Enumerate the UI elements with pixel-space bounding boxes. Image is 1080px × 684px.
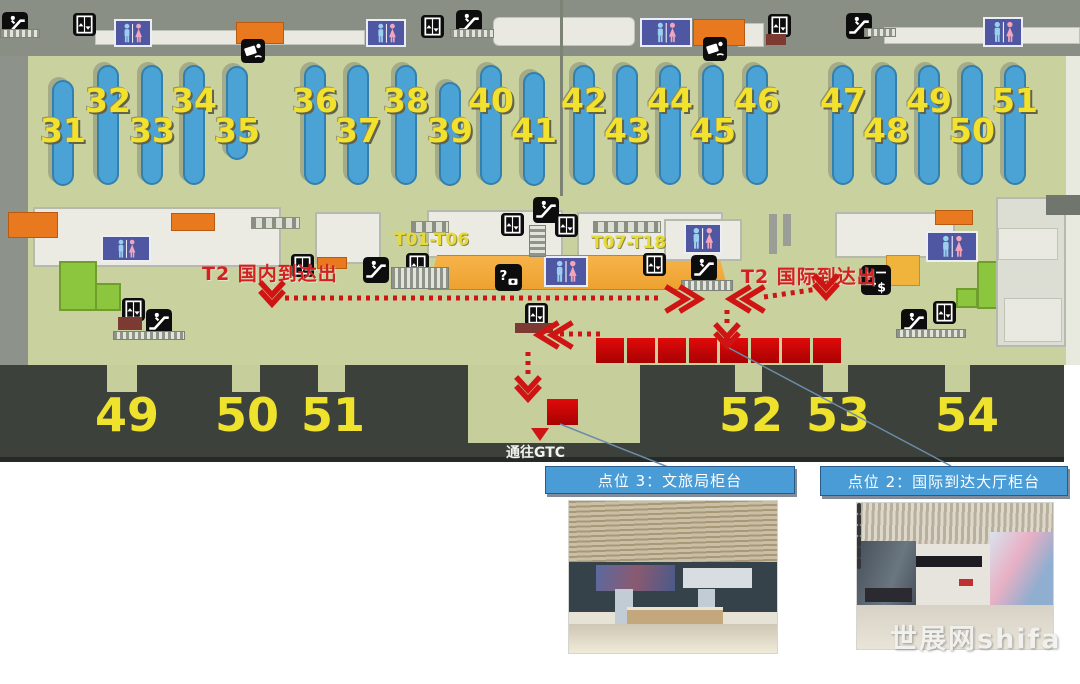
person-silhouette: [857, 558, 861, 569]
door-number: 54: [927, 392, 1007, 438]
photo-tourism-counter: [568, 500, 778, 654]
callout-point-3: 点位 3：文旅局柜台: [545, 466, 795, 494]
watermark: 世展网shifa: [890, 617, 1062, 656]
person-silhouette: [857, 547, 861, 558]
photo-led-screen: [596, 565, 675, 591]
photo-floor: [569, 624, 777, 653]
callout-point-3-label: 点位 3：文旅局柜台: [598, 470, 742, 491]
door-number: 50: [207, 392, 287, 438]
door-number: 53: [798, 392, 878, 438]
person-silhouette: [857, 536, 861, 547]
person-silhouette: [857, 514, 861, 525]
door-number: 49: [87, 392, 167, 438]
door-number: 51: [293, 392, 373, 438]
person-silhouette: [857, 525, 861, 536]
photo-ceiling: [569, 501, 777, 562]
door-number: 52: [711, 392, 791, 438]
photo-sign: [683, 568, 752, 588]
person-silhouette: [857, 503, 861, 514]
callout-point-2-label: 点位 2：国际到达大厅柜台: [848, 471, 1040, 492]
callout-point-2: 点位 2：国际到达大厅柜台: [820, 466, 1068, 496]
terminal-map-page: 3132333435363738394041424344454647484950…: [0, 0, 1080, 684]
